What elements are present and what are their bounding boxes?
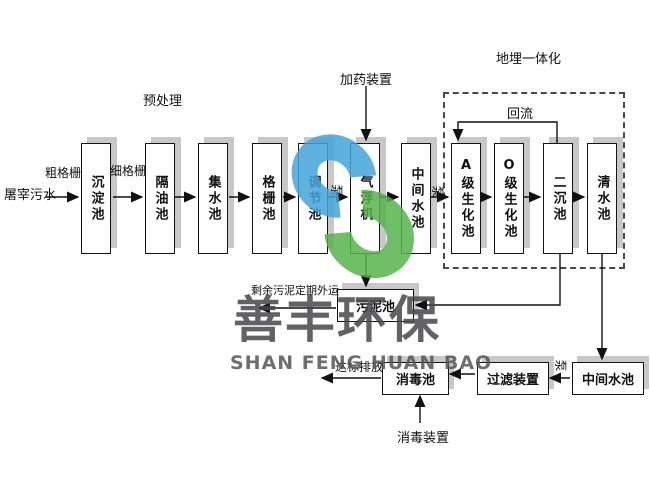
pretreatment-label: 预处理 [143,90,182,109]
tank-label: 格栅池 [261,175,274,223]
pump-label-3: 泵 [553,359,570,371]
fine-screen-label: 细格栅 [110,162,146,179]
dosing-device-label: 加药装置 [340,69,392,88]
disinfection-device-label: 消毒装置 [397,427,449,446]
pump-label-2: 泵 [430,185,447,197]
reflux-label: 回流 [507,103,533,122]
coarse-screen-label: 粗格栅 [45,164,81,181]
tank-o-bio: O级生化池 [494,143,524,254]
tank-label: 集水池 [207,175,220,223]
tank-collection: 集水池 [198,143,228,254]
tank-label: 调节池 [307,175,320,223]
buried-integration-label: 地埋一体化 [496,48,561,67]
tank-clear-water: 清水池 [587,143,617,254]
tank-disinfection: 消毒池 [382,362,449,395]
device-filter: 过滤装置 [477,362,549,395]
tank-a-bio: A级生化池 [451,143,481,254]
tank-screen: 格栅池 [252,143,282,254]
tank-label: 气浮机 [359,175,372,223]
tank-intermediate-1: 中间水池 [401,143,431,254]
tank-sludge: 污泥池 [337,289,414,322]
tank-secondary-sedimentation: 二沉池 [543,143,573,254]
tank-intermediate-2: 中间水池 [572,362,644,395]
process-flow-diagram: 沉淀池 隔油池 集水池 格栅池 调节池 气浮机 中间水池 A级生化池 O级生化池… [0,0,650,500]
tank-air-flotation: 气浮机 [350,143,380,254]
tank-label: O级生化池 [503,158,516,240]
standard-discharge-label: 达标排放 [335,358,383,375]
tank-oil-separation: 隔油池 [145,143,175,254]
tank-label: 隔油池 [154,175,167,223]
tank-label: 二沉池 [552,175,565,223]
tank-regulating: 调节池 [298,143,328,254]
pump-label-1: 泵 [329,184,346,196]
tank-sedimentation: 沉淀池 [81,143,111,254]
tank-label: 中间水池 [410,167,423,231]
source-water-label: 屠宰污水 [4,184,56,203]
tank-label: A级生化池 [460,158,473,240]
tank-label: 沉淀池 [90,175,103,223]
excess-sludge-label: 剩余污泥定期外运 [251,282,339,298]
tank-label: 清水池 [596,175,609,223]
